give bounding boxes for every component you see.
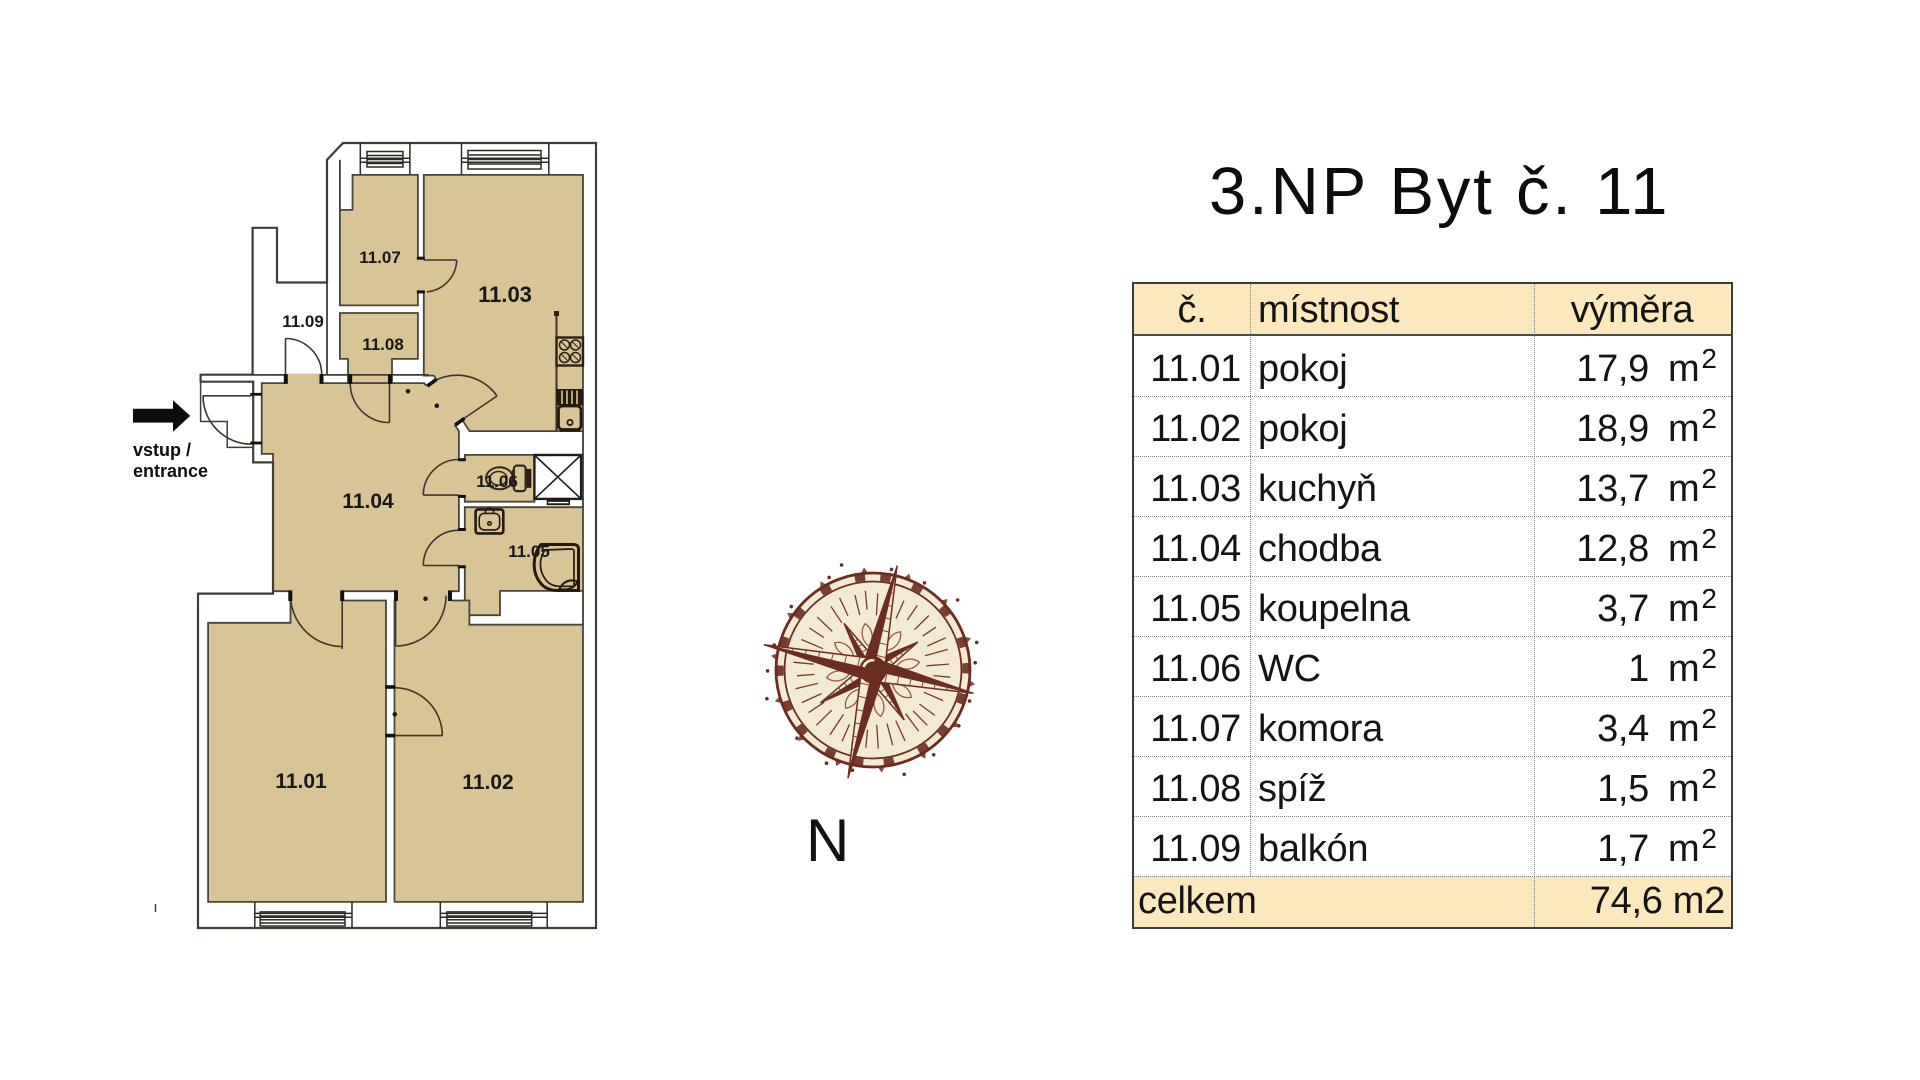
svg-text:11.02: 11.02 — [462, 771, 513, 794]
svg-text:11.05: 11.05 — [508, 542, 550, 561]
svg-text:11.06: 11.06 — [476, 472, 518, 491]
svg-text:11.01: 11.01 — [275, 770, 327, 793]
svg-text:11.03: 11.03 — [478, 282, 532, 307]
svg-text:11.04: 11.04 — [342, 490, 394, 513]
svg-text:11.09: 11.09 — [282, 312, 324, 331]
svg-text:11.07: 11.07 — [359, 248, 401, 267]
svg-text:11.08: 11.08 — [362, 335, 404, 354]
